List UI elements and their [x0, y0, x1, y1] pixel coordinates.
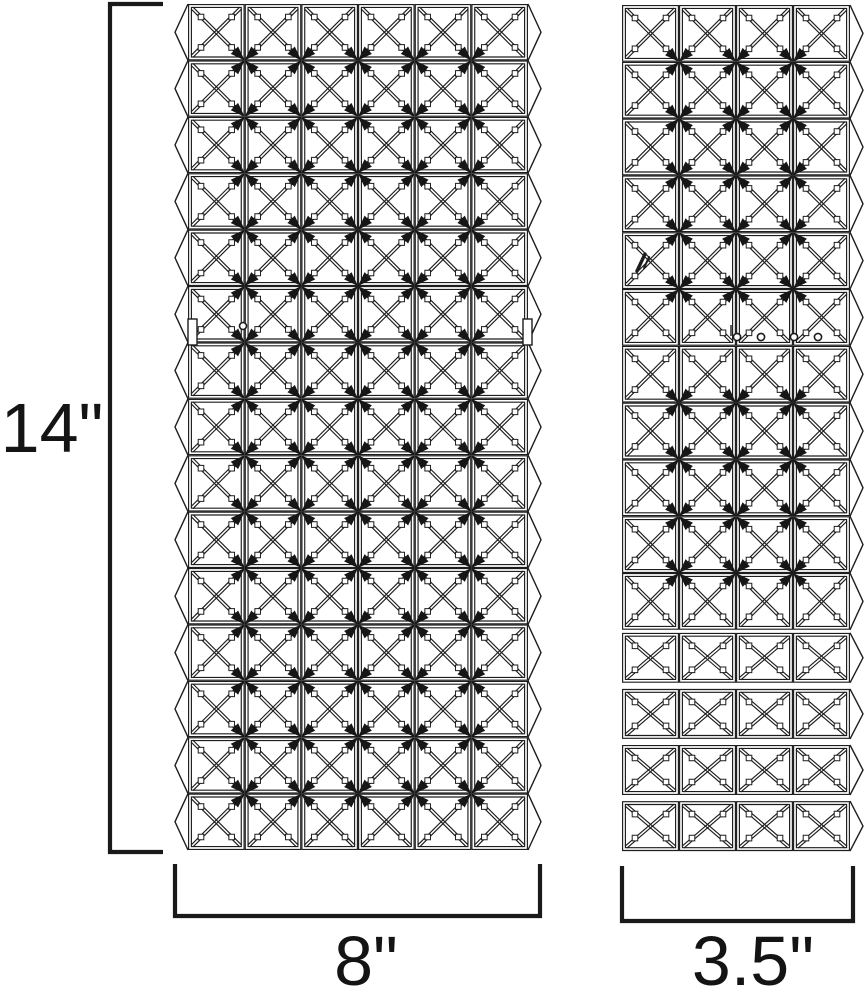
bowtie-ornament — [344, 272, 372, 300]
bowtie-ornament — [287, 103, 315, 131]
bowtie-ornament — [287, 498, 315, 526]
bowtie-ornament — [231, 103, 259, 131]
bowtie-ornament — [457, 46, 485, 74]
crystal-cell — [737, 746, 793, 795]
bowtie-ornament — [231, 159, 259, 187]
edge-prism-point — [175, 568, 188, 624]
edge-prism-point — [528, 173, 541, 229]
bowtie-ornament — [779, 218, 807, 246]
bowtie-ornament — [401, 780, 429, 808]
bowtie-ornament — [457, 216, 485, 244]
crystal-cell — [680, 690, 736, 739]
edge-prism-point — [528, 4, 541, 60]
crystal-cell — [737, 802, 793, 851]
edge-prism-point — [175, 399, 188, 455]
bowtie-ornament — [231, 385, 259, 413]
spec-sheet-page: 14" 8" 3.5" — [0, 0, 866, 1000]
bowtie-ornament — [665, 445, 693, 473]
bowtie-ornament — [401, 554, 429, 582]
bowtie-ornament — [344, 498, 372, 526]
bowtie-ornament — [287, 610, 315, 638]
edge-prism-point — [850, 459, 863, 516]
bowtie-ornament — [344, 441, 372, 469]
bowtie-ornament — [231, 272, 259, 300]
bowtie-ornament — [457, 610, 485, 638]
edge-prism-point — [850, 633, 863, 683]
bowtie-ornament — [457, 723, 485, 751]
bowtie-ornament — [344, 385, 372, 413]
bowtie-ornament — [231, 554, 259, 582]
bowtie-ornament — [287, 216, 315, 244]
bowtie-ornament — [665, 502, 693, 530]
edge-prism-point — [850, 745, 863, 795]
bowtie-ornament — [779, 105, 807, 133]
bowtie-ornament — [722, 105, 750, 133]
bowtie-ornament — [722, 161, 750, 189]
bowtie-ornament — [344, 780, 372, 808]
bowtie-ornament — [344, 554, 372, 582]
crystal-cell — [623, 802, 679, 851]
side-width-dimension-bracket — [622, 866, 853, 921]
bowtie-ornament — [457, 667, 485, 695]
bowtie-ornament — [779, 502, 807, 530]
bowtie-ornament — [779, 389, 807, 417]
edge-prism-point — [528, 737, 541, 793]
bowtie-ornament — [457, 385, 485, 413]
edge-prism-point — [528, 568, 541, 624]
dimension-drawing: 14" 8" 3.5" — [0, 0, 866, 1000]
bowtie-ornament — [665, 559, 693, 587]
bowtie-ornament — [722, 275, 750, 303]
edge-prism-point — [175, 681, 188, 737]
bowtie-ornament — [457, 328, 485, 356]
edge-prism-point — [175, 230, 188, 286]
bowtie-ornament — [287, 272, 315, 300]
bowtie-ornament — [287, 554, 315, 582]
front-width-dimension-label: 8" — [334, 922, 398, 1000]
bowtie-ornament — [457, 103, 485, 131]
edge-prism-point — [175, 4, 188, 60]
crystal-cell — [794, 690, 850, 739]
bowtie-ornament — [401, 723, 429, 751]
bowtie-ornament — [722, 389, 750, 417]
edge-prism-point — [850, 689, 863, 739]
bowtie-ornament — [231, 216, 259, 244]
bowtie-ornament — [779, 275, 807, 303]
bowtie-ornament — [457, 441, 485, 469]
bowtie-ornament — [779, 445, 807, 473]
bowtie-ornament — [722, 48, 750, 76]
crystal-cell — [680, 802, 736, 851]
edge-prism-point — [528, 60, 541, 116]
bowtie-ornament — [401, 385, 429, 413]
bowtie-ornament — [287, 780, 315, 808]
bowtie-ornament — [665, 161, 693, 189]
bowtie-ornament — [722, 559, 750, 587]
crystal-cell — [623, 746, 679, 795]
pin-hole — [240, 323, 247, 330]
edge-prism-point — [850, 62, 863, 119]
side-width-dimension-label: 3.5" — [692, 922, 814, 1000]
edge-prism-point — [175, 794, 188, 850]
bowtie-ornament — [287, 723, 315, 751]
edge-prism-point — [850, 119, 863, 176]
edge-prism-point — [175, 512, 188, 568]
screw-hole — [814, 333, 821, 340]
bowtie-ornament — [401, 667, 429, 695]
edge-prism-point — [175, 624, 188, 680]
bowtie-ornament — [231, 667, 259, 695]
bowtie-ornament — [665, 275, 693, 303]
edge-prism-point — [850, 175, 863, 232]
bowtie-ornament — [457, 159, 485, 187]
edge-prism-point — [175, 737, 188, 793]
bowtie-ornament — [457, 780, 485, 808]
crystal-cell — [623, 633, 679, 682]
edge-prism-point — [175, 455, 188, 511]
bowtie-ornament — [779, 161, 807, 189]
bowtie-ornament — [344, 328, 372, 356]
bowtie-ornament — [401, 46, 429, 74]
edge-prism-point — [850, 5, 863, 62]
front-width-dimension-bracket — [175, 864, 540, 916]
bowtie-ornament — [344, 667, 372, 695]
edge-prism-point — [850, 346, 863, 403]
crystal-cell — [737, 633, 793, 682]
bowtie-ornament — [231, 498, 259, 526]
bowtie-ornament — [457, 498, 485, 526]
bowtie-ornament — [344, 610, 372, 638]
bowtie-ornament — [231, 46, 259, 74]
crystal-cell — [794, 633, 850, 682]
bowtie-ornament — [344, 46, 372, 74]
edge-prism-point — [528, 512, 541, 568]
bowtie-ornament — [287, 441, 315, 469]
crystal-cell — [680, 746, 736, 795]
edge-prism-point — [528, 681, 541, 737]
bowtie-ornament — [401, 328, 429, 356]
edge-prism-point — [528, 117, 541, 173]
bowtie-ornament — [457, 554, 485, 582]
bowtie-ornament — [457, 272, 485, 300]
bowtie-ornament — [344, 216, 372, 244]
bowtie-ornament — [401, 216, 429, 244]
mounting-tab — [188, 319, 197, 345]
crystal-cell — [794, 746, 850, 795]
bowtie-ornament — [231, 328, 259, 356]
edge-prism-point — [175, 117, 188, 173]
bowtie-ornament — [231, 723, 259, 751]
bowtie-ornament — [287, 328, 315, 356]
bowtie-ornament — [287, 667, 315, 695]
bowtie-ornament — [665, 389, 693, 417]
bowtie-ornament — [344, 103, 372, 131]
bowtie-ornament — [665, 218, 693, 246]
edge-prism-point — [850, 289, 863, 346]
bowtie-ornament — [722, 502, 750, 530]
crystal-cell — [680, 633, 736, 682]
edge-prism-point — [175, 342, 188, 398]
edge-prism-point — [175, 286, 188, 342]
bowtie-ornament — [401, 610, 429, 638]
edge-prism-point — [175, 173, 188, 229]
bowtie-ornament — [779, 559, 807, 587]
crystal-cell — [737, 690, 793, 739]
edge-prism-point — [528, 399, 541, 455]
bowtie-ornament — [344, 723, 372, 751]
bowtie-ornament — [231, 780, 259, 808]
bowtie-ornament — [287, 385, 315, 413]
edge-prism-point — [850, 516, 863, 573]
bowtie-ornament — [231, 441, 259, 469]
screw-hole — [757, 333, 764, 340]
edge-prism-point — [850, 232, 863, 289]
screw-hole — [790, 333, 797, 340]
edge-prism-point — [850, 573, 863, 630]
edge-prism-point — [850, 403, 863, 460]
bowtie-ornament — [779, 48, 807, 76]
mounting-tab — [523, 319, 532, 345]
bowtie-ornament — [722, 218, 750, 246]
bowtie-ornament — [401, 441, 429, 469]
bowtie-ornament — [401, 103, 429, 131]
side-panel-drawing — [623, 5, 863, 851]
bowtie-ornament — [287, 46, 315, 74]
front-panel-drawing — [175, 4, 541, 850]
edge-prism-point — [528, 624, 541, 680]
edge-prism-point — [175, 60, 188, 116]
bowtie-ornament — [665, 105, 693, 133]
edge-prism-point — [528, 794, 541, 850]
bowtie-ornament — [287, 159, 315, 187]
bowtie-ornament — [401, 272, 429, 300]
bowtie-ornament — [722, 445, 750, 473]
edge-prism-point — [528, 455, 541, 511]
bowtie-ornament — [231, 610, 259, 638]
edge-prism-point — [528, 230, 541, 286]
height-dimension-bracket — [110, 4, 163, 852]
bowtie-ornament — [401, 498, 429, 526]
height-dimension-label: 14" — [1, 389, 104, 467]
bowtie-ornament — [344, 159, 372, 187]
crystal-cell — [623, 690, 679, 739]
bowtie-ornament — [665, 48, 693, 76]
screw-hole — [733, 333, 740, 340]
crystal-cell — [794, 802, 850, 851]
bowtie-ornament — [401, 159, 429, 187]
edge-prism-point — [850, 801, 863, 851]
edge-prism-point — [528, 342, 541, 398]
